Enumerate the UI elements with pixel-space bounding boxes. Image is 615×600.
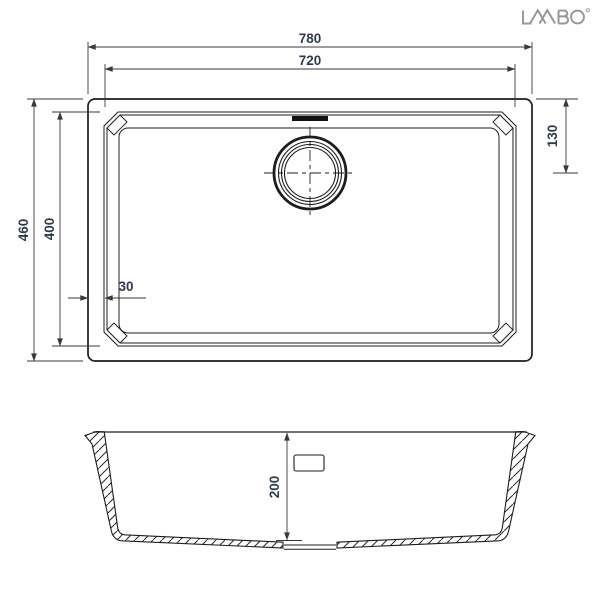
logo-registered-mark — [586, 9, 589, 12]
top-view-dimensions — [27, 42, 578, 361]
sink-technical-drawing: 780 720 460 400 130 30 200 — [0, 0, 615, 600]
section-wall-left — [85, 432, 283, 549]
bowl-depth-label: 200 — [267, 476, 282, 499]
dim-inner-depth — [52, 112, 100, 346]
section-wall-right — [337, 432, 535, 549]
dim-inner-width — [105, 64, 515, 107]
lavabo-logo — [523, 9, 589, 24]
top-view — [88, 99, 532, 361]
extension-line — [88, 42, 532, 94]
inner-width-label: 720 — [299, 53, 322, 68]
bowl-rim-inner-line — [107, 115, 513, 343]
section-view — [85, 432, 535, 550]
extension-line — [105, 64, 515, 107]
drain-recess — [284, 545, 336, 549]
logo-letter-b — [559, 11, 569, 24]
drain-offset-label: 130 — [545, 125, 560, 148]
drain — [264, 127, 356, 219]
overflow-slot-top-view — [292, 116, 328, 121]
dimension-labels: 780 720 460 400 130 30 200 — [16, 31, 560, 498]
rim-width-label: 30 — [118, 279, 133, 294]
outer-depth-label: 460 — [16, 219, 31, 242]
logo-letter-o — [571, 11, 584, 24]
dim-outer-width — [88, 42, 532, 94]
extension-line — [52, 112, 100, 346]
inner-depth-label: 400 — [42, 218, 57, 241]
bowl-bottom-edge — [119, 128, 499, 333]
overflow-slot-section-view — [294, 455, 324, 471]
outer-width-label: 780 — [299, 31, 322, 46]
